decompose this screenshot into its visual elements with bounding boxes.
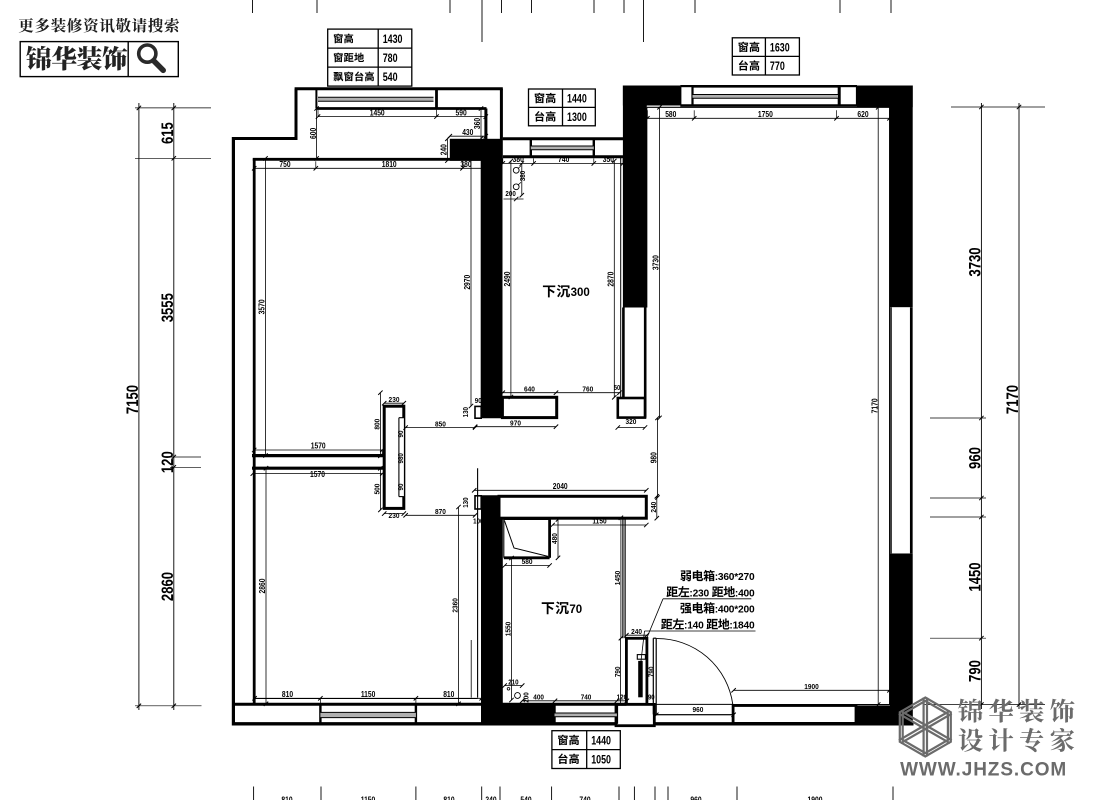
svg-text:2040: 2040 — [553, 481, 568, 491]
svg-text:3570: 3570 — [257, 299, 267, 314]
svg-text:1570: 1570 — [311, 441, 326, 451]
svg-text:1810: 1810 — [382, 159, 397, 169]
svg-text:7170: 7170 — [870, 398, 880, 413]
svg-text:810: 810 — [281, 795, 292, 800]
svg-text:620: 620 — [857, 109, 868, 119]
svg-text:790: 790 — [648, 666, 656, 677]
svg-text:790: 790 — [967, 660, 985, 682]
svg-text:1750: 1750 — [758, 109, 773, 119]
svg-text:3555: 3555 — [160, 293, 178, 322]
svg-text:540: 540 — [383, 70, 398, 84]
svg-text:100: 100 — [473, 518, 484, 526]
svg-text:870: 870 — [435, 508, 446, 517]
svg-text:380: 380 — [460, 159, 471, 169]
svg-text:7170: 7170 — [1005, 385, 1023, 414]
svg-text::230: :230 — [689, 588, 709, 599]
svg-text:500: 500 — [373, 484, 382, 495]
svg-text:230: 230 — [389, 511, 400, 520]
svg-text:1550: 1550 — [504, 622, 513, 637]
svg-text:960: 960 — [690, 795, 701, 800]
svg-text:760: 760 — [582, 385, 593, 394]
svg-text:2860: 2860 — [160, 572, 178, 601]
svg-text:90: 90 — [475, 398, 482, 406]
svg-text:970: 970 — [510, 419, 521, 428]
svg-text:800: 800 — [373, 419, 382, 430]
svg-text:50: 50 — [614, 385, 621, 393]
svg-text::400*200: :400*200 — [715, 604, 755, 615]
svg-text:240: 240 — [485, 795, 496, 800]
svg-text:430: 430 — [462, 127, 473, 137]
svg-text:1150: 1150 — [361, 689, 376, 699]
svg-text:90: 90 — [398, 430, 406, 437]
svg-text:240: 240 — [439, 144, 449, 155]
svg-text:810: 810 — [443, 795, 454, 800]
svg-text:1570: 1570 — [310, 469, 325, 479]
svg-text:780: 780 — [383, 51, 398, 65]
svg-text:3730: 3730 — [651, 255, 661, 270]
svg-text:750: 750 — [279, 159, 290, 169]
svg-text:600: 600 — [308, 128, 318, 139]
svg-text:2860: 2860 — [258, 579, 268, 594]
svg-text:1450: 1450 — [614, 571, 623, 586]
svg-text::1840: :1840 — [729, 621, 755, 632]
svg-text:740: 740 — [581, 694, 592, 702]
svg-text::360*270: :360*270 — [715, 572, 755, 583]
svg-text:2490: 2490 — [503, 272, 513, 287]
svg-text:130: 130 — [463, 407, 471, 418]
svg-text::140: :140 — [684, 621, 704, 632]
svg-text:130: 130 — [463, 497, 471, 508]
svg-text:1450: 1450 — [967, 562, 985, 591]
svg-text:3730: 3730 — [967, 247, 985, 276]
svg-text:240: 240 — [631, 627, 642, 636]
svg-text:320: 320 — [625, 418, 636, 427]
svg-text:810: 810 — [443, 689, 454, 699]
svg-text:1630: 1630 — [770, 40, 790, 54]
svg-text:1050: 1050 — [591, 752, 611, 766]
svg-text::400: :400 — [735, 588, 755, 599]
svg-text:1450: 1450 — [370, 108, 385, 118]
svg-text:590: 590 — [455, 108, 466, 118]
svg-text:70: 70 — [569, 604, 582, 616]
svg-text:90: 90 — [648, 694, 655, 702]
svg-text:360: 360 — [473, 118, 483, 129]
svg-text:960: 960 — [692, 705, 703, 714]
svg-text:120: 120 — [617, 694, 628, 702]
svg-text:740: 740 — [558, 155, 569, 165]
svg-text:240: 240 — [650, 502, 659, 513]
svg-text:210: 210 — [508, 679, 519, 687]
svg-text:230: 230 — [389, 395, 400, 404]
svg-text:740: 740 — [579, 795, 590, 800]
svg-text:380: 380 — [519, 171, 527, 182]
svg-text:2870: 2870 — [606, 272, 616, 287]
svg-text:1440: 1440 — [567, 92, 587, 106]
svg-text:770: 770 — [770, 59, 785, 73]
svg-text:615: 615 — [160, 122, 178, 144]
svg-text:1900: 1900 — [808, 795, 823, 800]
svg-text:1150: 1150 — [592, 517, 606, 526]
svg-text:1900: 1900 — [804, 683, 819, 692]
svg-text:7150: 7150 — [125, 385, 143, 414]
svg-text:480: 480 — [551, 533, 560, 544]
svg-text:120: 120 — [160, 451, 178, 473]
svg-text:980: 980 — [398, 453, 406, 464]
svg-text:1150: 1150 — [361, 795, 376, 800]
svg-text:790: 790 — [615, 666, 623, 677]
svg-text:540: 540 — [520, 795, 531, 800]
svg-text:WWW.JHZS.COM: WWW.JHZS.COM — [900, 760, 1067, 781]
svg-text:580: 580 — [522, 558, 533, 567]
svg-text:300: 300 — [571, 287, 590, 299]
svg-text:2360: 2360 — [451, 598, 460, 613]
svg-text:850: 850 — [435, 420, 446, 429]
svg-text:960: 960 — [967, 447, 985, 469]
svg-text:1300: 1300 — [567, 110, 587, 124]
svg-text:810: 810 — [282, 689, 293, 699]
svg-text:580: 580 — [665, 109, 676, 119]
svg-text:1430: 1430 — [383, 32, 403, 46]
svg-text:400: 400 — [533, 694, 544, 702]
svg-text:2970: 2970 — [463, 275, 473, 290]
svg-text:1440: 1440 — [591, 734, 611, 748]
svg-text:980: 980 — [649, 452, 659, 463]
svg-text:90: 90 — [398, 483, 406, 490]
svg-text:640: 640 — [524, 385, 535, 394]
